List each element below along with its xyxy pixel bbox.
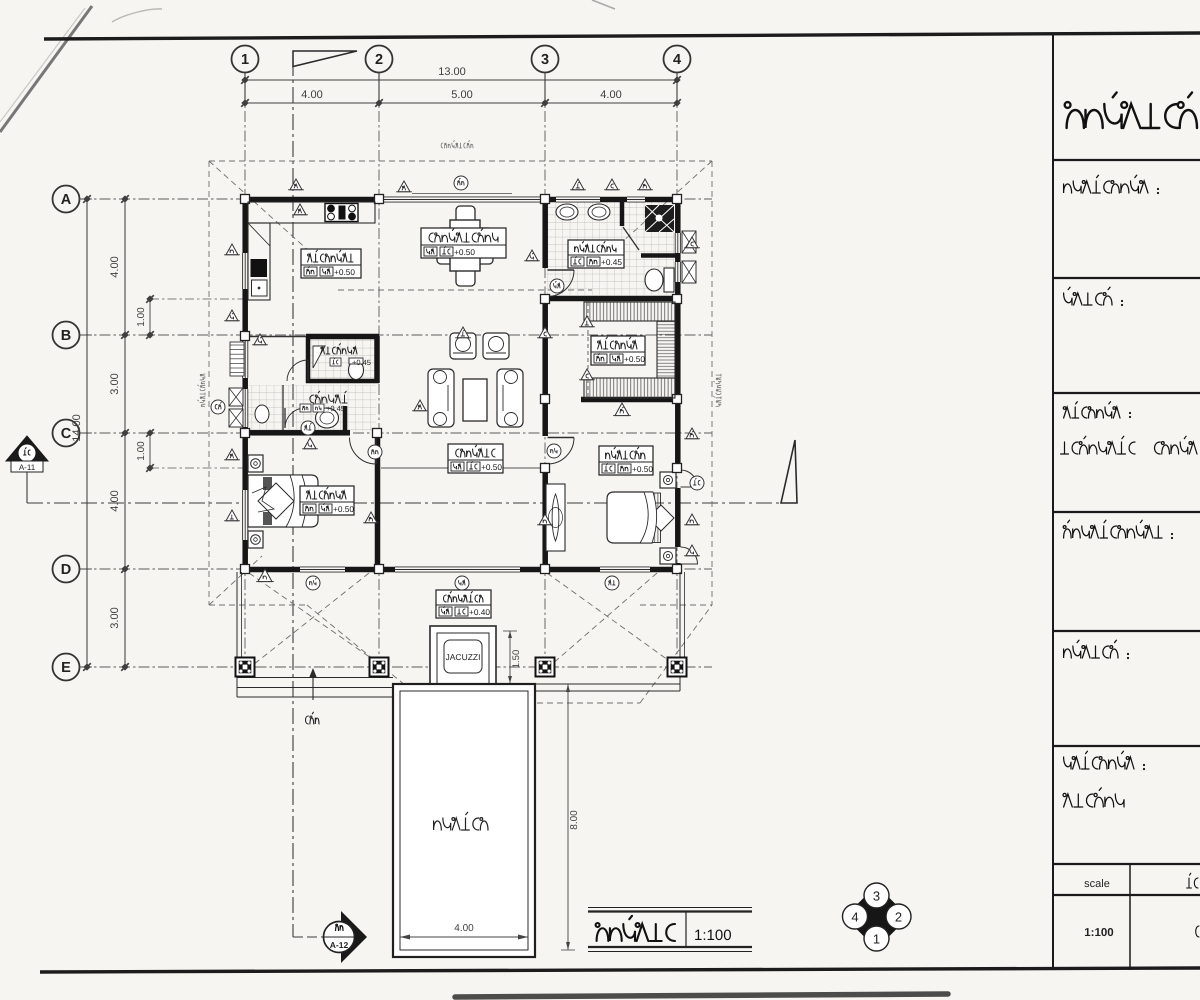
svg-text:4.00: 4.00 [301,89,322,101]
svg-text:1:100: 1:100 [1084,927,1113,939]
svg-text:+0.50: +0.50 [632,464,653,474]
svg-text:8.00: 8.00 [569,810,580,830]
svg-text:+0.50: +0.50 [454,247,475,257]
svg-text:14.00: 14.00 [71,414,83,442]
svg-text:4: 4 [851,910,858,925]
svg-text:E: E [61,660,71,676]
svg-text:2: 2 [895,910,902,925]
svg-text:4: 4 [673,52,681,68]
svg-text:3.00: 3.00 [109,373,121,394]
svg-text:JACUZZI: JACUZZI [446,652,481,662]
svg-text:1.00: 1.00 [136,307,147,327]
svg-text:13.00: 13.00 [438,66,466,78]
svg-text:+0.50: +0.50 [334,267,355,277]
svg-text:4.00: 4.00 [109,256,121,277]
svg-text:4.00: 4.00 [600,89,621,101]
svg-text:3.00: 3.00 [109,607,121,628]
svg-text:+0.50: +0.50 [333,504,354,514]
svg-text:1:100: 1:100 [694,927,732,944]
svg-text:4.00: 4.00 [109,490,121,511]
svg-text:+0.40: +0.40 [469,607,490,617]
svg-text:+0.45: +0.45 [352,358,371,367]
svg-text:B: B [61,328,71,344]
svg-text:+0.45: +0.45 [601,257,622,267]
svg-text:1: 1 [241,52,249,68]
svg-text:1: 1 [873,932,880,947]
svg-text:1.50: 1.50 [511,650,522,669]
svg-text:1.00: 1.00 [136,441,147,461]
svg-text:5.00: 5.00 [451,89,472,101]
svg-text:A-12: A-12 [330,940,349,950]
svg-text:scale: scale [1084,878,1110,890]
svg-text:A: A [61,192,72,208]
svg-text:+0.45: +0.45 [326,404,345,413]
svg-text:+0.50: +0.50 [624,354,645,364]
svg-text:+0.50: +0.50 [481,462,502,472]
svg-text:D: D [61,562,71,578]
svg-text:4.00: 4.00 [454,923,474,934]
svg-text:2: 2 [375,52,383,68]
svg-text:3: 3 [541,52,549,68]
svg-text:A-11: A-11 [19,463,36,472]
svg-text:3: 3 [873,889,880,904]
